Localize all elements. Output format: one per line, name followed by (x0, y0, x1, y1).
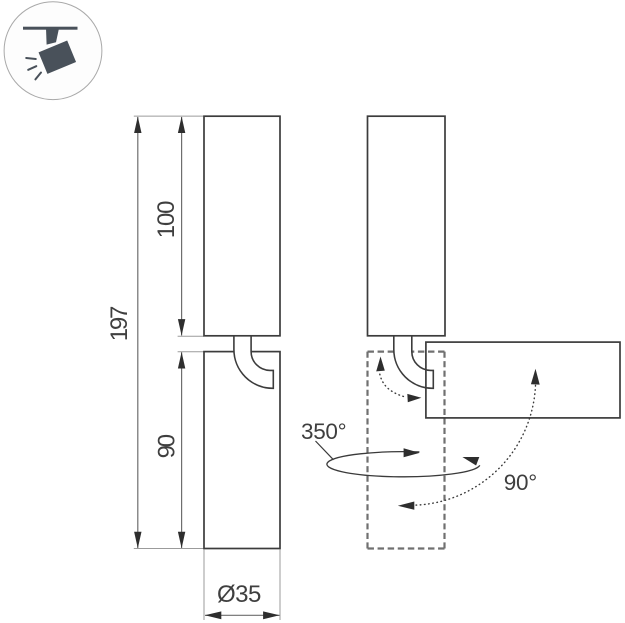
svg-text:Ø35: Ø35 (217, 581, 261, 608)
svg-text:350°: 350° (301, 419, 346, 444)
svg-text:90: 90 (154, 434, 181, 458)
svg-text:90°: 90° (504, 470, 537, 495)
svg-text:100: 100 (153, 201, 180, 238)
svg-text:197: 197 (106, 306, 133, 341)
